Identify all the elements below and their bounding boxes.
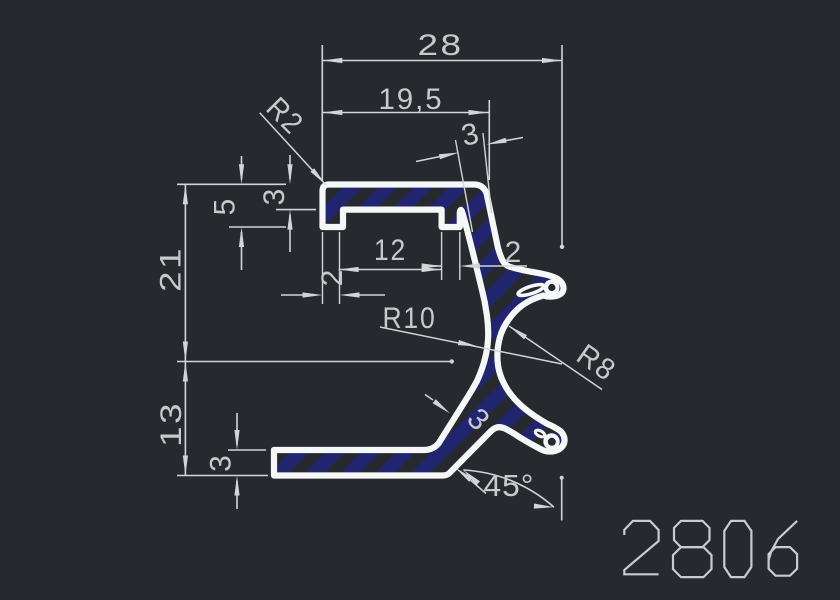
svg-text:2: 2 (316, 268, 349, 287)
svg-text:12: 12 (374, 234, 407, 267)
svg-text:21: 21 (155, 246, 188, 292)
svg-text:3: 3 (258, 187, 291, 206)
svg-text:5: 5 (209, 197, 242, 216)
svg-text:3: 3 (205, 453, 238, 472)
svg-text:2: 2 (505, 236, 524, 269)
svg-text:45°: 45° (484, 468, 535, 503)
svg-text:28: 28 (418, 29, 464, 62)
svg-text:R10: R10 (383, 302, 437, 335)
svg-text:13: 13 (155, 401, 188, 447)
svg-text:19,5: 19,5 (379, 83, 444, 116)
